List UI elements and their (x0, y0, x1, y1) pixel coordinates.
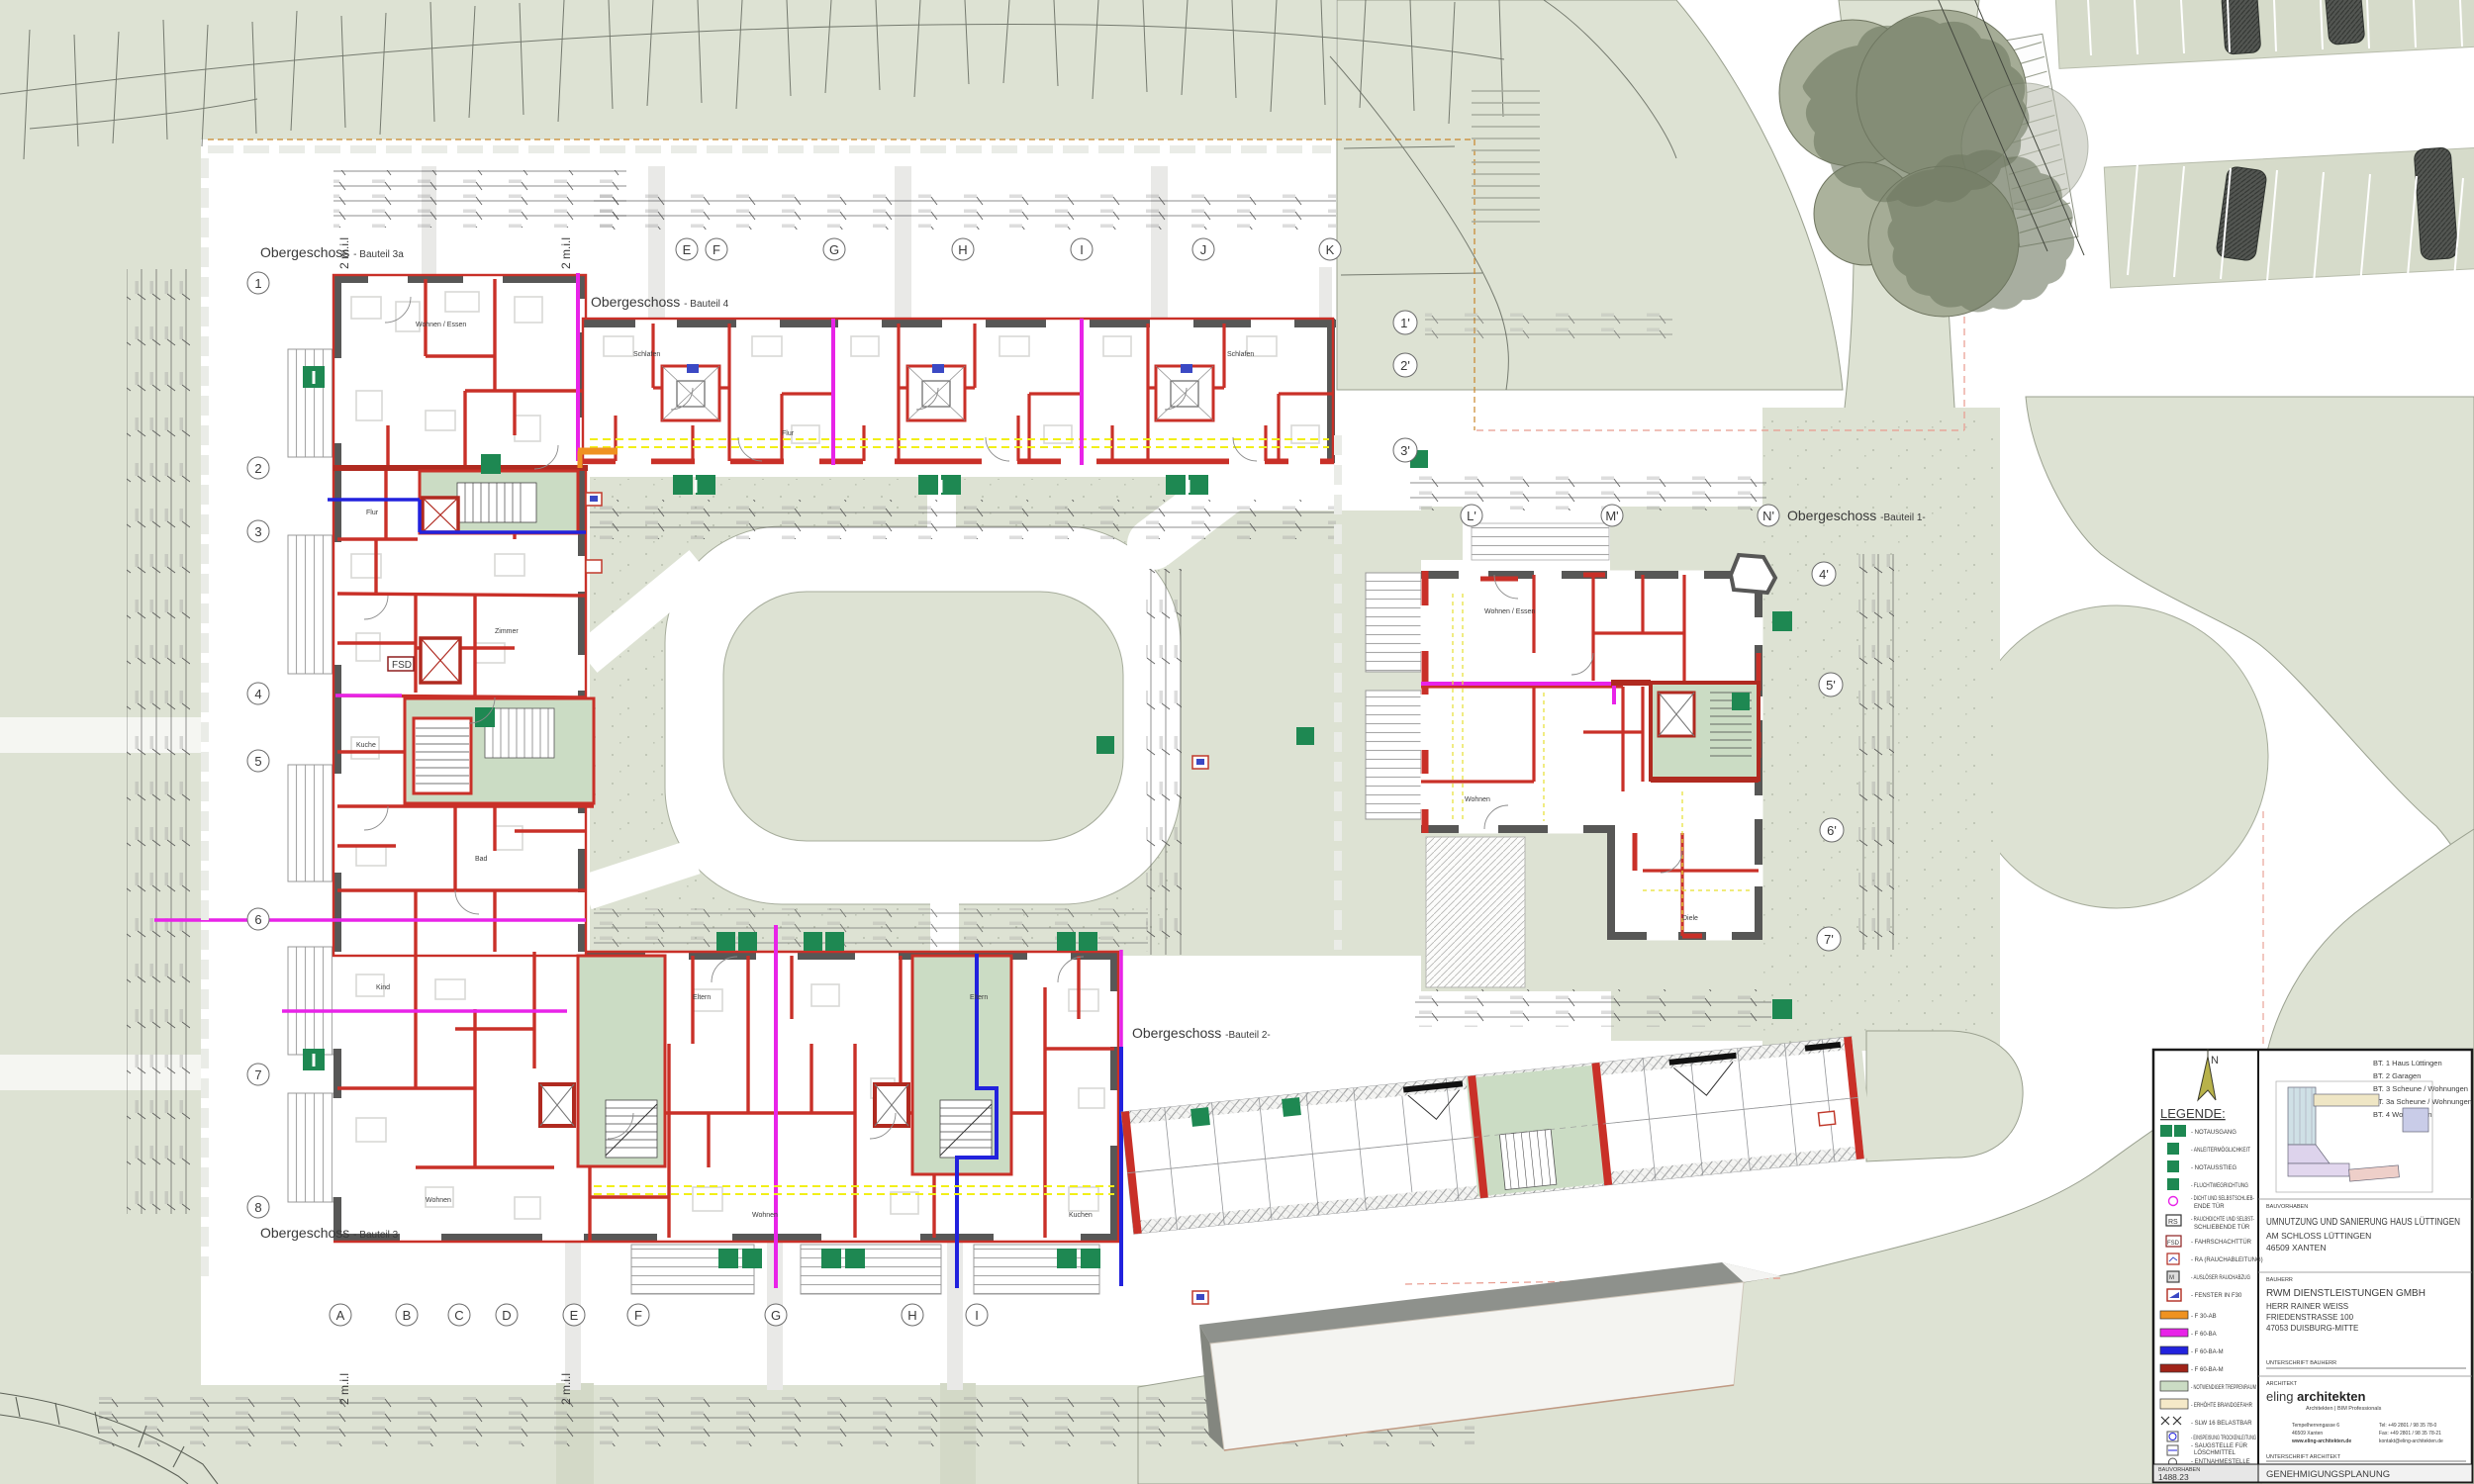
svg-text:Wohnen: Wohnen (1465, 796, 1490, 803)
svg-text:- NOTAUSGANG: - NOTAUSGANG (2191, 1130, 2236, 1136)
svg-text:H: H (958, 242, 967, 257)
svg-text:Bad: Bad (475, 856, 488, 863)
svg-text:Schlafen: Schlafen (1227, 351, 1254, 358)
svg-text:F: F (713, 242, 720, 257)
svg-text:7: 7 (254, 1067, 261, 1082)
svg-text:K: K (1326, 242, 1335, 257)
svg-text:ARCHITEKT: ARCHITEKT (2266, 1381, 2298, 1387)
svg-text:Diele: Diele (1682, 915, 1698, 922)
svg-text:J: J (1200, 242, 1207, 257)
svg-text:Tempelherrengasse 6: Tempelherrengasse 6 (2292, 1423, 2339, 1429)
svg-text:- F 30-AB: - F 30-AB (2191, 1314, 2217, 1320)
svg-text:L': L' (1467, 509, 1476, 523)
svg-text:5': 5' (1826, 678, 1836, 693)
svg-text:8: 8 (254, 1200, 261, 1215)
svg-text:D: D (502, 1308, 511, 1323)
svg-text:AM SCHLOSS LÜTTINGEN: AM SCHLOSS LÜTTINGEN (2266, 1231, 2371, 1241)
svg-text:C: C (454, 1308, 463, 1323)
svg-text:UMNUTZUNG UND SANIERUNG HAUS L: UMNUTZUNG UND SANIERUNG HAUS LÜTTINGEN (2266, 1216, 2460, 1228)
svg-text:- FENSTER IN F30: - FENSTER IN F30 (2191, 1293, 2242, 1299)
svg-text:6: 6 (254, 912, 261, 927)
svg-text:BT. 3a Scheune / Wohnungen: BT. 3a Scheune / Wohnungen (2373, 1097, 2472, 1106)
svg-text:47053 DUISBURG-MITTE: 47053 DUISBURG-MITTE (2266, 1324, 2358, 1333)
svg-text:- F 60-BA-M: - F 60-BA-M (2191, 1367, 2224, 1373)
svg-text:BT. 2 Garagen: BT. 2 Garagen (2373, 1071, 2421, 1080)
svg-text:- F 60-BA-M: - F 60-BA-M (2191, 1349, 2224, 1355)
svg-text:- FAHRSCHACHTTÜR: - FAHRSCHACHTTÜR (2191, 1239, 2252, 1246)
svg-text:- SAUGSTELLE FÜR: - SAUGSTELLE FÜR (2191, 1442, 2248, 1449)
svg-text:- NOTWENDIGER TREPPENRAUM: - NOTWENDIGER TREPPENRAUM (2191, 1385, 2256, 1391)
svg-text:GENEHMIGUNGSPLANUNG: GENEHMIGUNGSPLANUNG (2266, 1469, 2390, 1480)
svg-text:- ANLEITERMÖGLICHKEIT: - ANLEITERMÖGLICHKEIT (2191, 1147, 2250, 1154)
svg-text:1: 1 (254, 276, 261, 291)
svg-text:G: G (829, 242, 839, 257)
svg-text:Architekten | BIM Professional: Architekten | BIM Professionals (2306, 1406, 2382, 1412)
svg-text:- FLUCHTWEGRICHTUNG: - FLUCHTWEGRICHTUNG (2191, 1183, 2248, 1189)
svg-text:Schlafen: Schlafen (633, 351, 660, 358)
svg-text:Kind: Kind (376, 984, 390, 991)
svg-text:F: F (634, 1308, 642, 1323)
svg-text:Wohnen: Wohnen (752, 1212, 778, 1219)
svg-text:Kuche: Kuche (356, 742, 376, 749)
svg-text:Tel: +49 2801 / 98 35 78-0: Tel: +49 2801 / 98 35 78-0 (2379, 1423, 2436, 1429)
svg-text:- NOTAUSSTIEG: - NOTAUSSTIEG (2191, 1165, 2237, 1171)
svg-text:RWM DIENSTLEISTUNGEN GMBH: RWM DIENSTLEISTUNGEN GMBH (2266, 1288, 2426, 1299)
svg-text:FSD: FSD (392, 660, 412, 671)
svg-text:3': 3' (1400, 443, 1410, 458)
svg-text:4: 4 (254, 687, 261, 701)
svg-text:LEGENDE:: LEGENDE: (2160, 1106, 2226, 1121)
svg-text:1': 1' (1400, 316, 1410, 330)
svg-text:Wohnen / Essen: Wohnen / Essen (416, 322, 466, 328)
svg-text:H: H (907, 1308, 916, 1323)
svg-text:- EINSPEISUNG TROCKENLEITUNG: - EINSPEISUNG TROCKENLEITUNG (2191, 1436, 2256, 1441)
svg-text:- F 60-BA: - F 60-BA (2191, 1332, 2217, 1338)
svg-text:N': N' (1762, 509, 1774, 523)
svg-text:- RAUCHDICHTE UND SELBST-: - RAUCHDICHTE UND SELBST- (2191, 1217, 2254, 1223)
svg-text:2: 2 (254, 461, 261, 476)
svg-text:LÖSCHMITTEL: LÖSCHMITTEL (2194, 1449, 2236, 1456)
svg-text:M: M (2169, 1275, 2174, 1281)
svg-text:I: I (975, 1308, 979, 1323)
svg-text:2 m.i.l: 2 m.i.l (337, 237, 351, 269)
svg-text:- SLW 16 BELASTBAR: - SLW 16 BELASTBAR (2191, 1421, 2252, 1427)
svg-text:www.eling-architekten.de: www.eling-architekten.de (2291, 1438, 2351, 1444)
svg-text:B: B (403, 1308, 412, 1323)
svg-text:- ERHÖHTE BRANDGEFAHR: - ERHÖHTE BRANDGEFAHR (2191, 1402, 2253, 1409)
svg-text:- AUSLÖSER RAUCHABZUG: - AUSLÖSER RAUCHABZUG (2191, 1274, 2250, 1281)
svg-text:5: 5 (254, 754, 261, 769)
svg-text:3: 3 (254, 524, 261, 539)
svg-text:N: N (2211, 1055, 2219, 1067)
svg-text:SCHLIEBENDE TÜR: SCHLIEBENDE TÜR (2194, 1224, 2250, 1231)
svg-text:2 m.i.l: 2 m.i.l (559, 237, 573, 269)
svg-text:UNTERSCHRIFT ARCHITEKT: UNTERSCHRIFT ARCHITEKT (2266, 1454, 2341, 1460)
svg-text:2': 2' (1400, 358, 1410, 373)
svg-text:Flur: Flur (366, 510, 379, 516)
svg-text:Wohnen / Essen: Wohnen / Essen (1484, 608, 1535, 615)
svg-text:FRIEDENSTRASSE 100: FRIEDENSTRASSE 100 (2266, 1313, 2354, 1322)
svg-text:Eltern: Eltern (693, 994, 711, 1001)
svg-text:BT. 1 Haus Lüttingen: BT. 1 Haus Lüttingen (2373, 1059, 2442, 1067)
svg-text:7': 7' (1824, 932, 1834, 947)
svg-text:Kuchen: Kuchen (1069, 1212, 1093, 1219)
svg-text:HERR RAINER WEISS: HERR RAINER WEISS (2266, 1302, 2348, 1311)
svg-text:ENDE TÜR: ENDE TÜR (2194, 1203, 2225, 1210)
svg-text:RS: RS (2168, 1219, 2178, 1226)
svg-text:Flur: Flur (782, 430, 795, 437)
svg-text:1488.23: 1488.23 (2158, 1472, 2189, 1482)
svg-text:M': M' (1605, 509, 1618, 523)
svg-text:Zimmer: Zimmer (495, 628, 519, 635)
svg-text:UNTERSCHRIFT BAUHERR: UNTERSCHRIFT BAUHERR (2266, 1360, 2336, 1366)
svg-text:E: E (570, 1308, 579, 1323)
svg-text:46509 Xanten: 46509 Xanten (2292, 1431, 2323, 1437)
svg-text:kontakt@eling-architekten.de: kontakt@eling-architekten.de (2379, 1438, 2443, 1444)
svg-text:2 m.i.l: 2 m.i.l (337, 1373, 351, 1405)
svg-text:BT. 3 Scheune / Wohnungen: BT. 3 Scheune / Wohnungen (2373, 1084, 2468, 1093)
svg-text:Wohnen: Wohnen (426, 1197, 451, 1204)
svg-text:46509 XANTEN: 46509 XANTEN (2266, 1243, 2326, 1252)
svg-text:eling architekten: eling architekten (2266, 1389, 2365, 1404)
svg-text:BAUHERR: BAUHERR (2266, 1277, 2293, 1283)
svg-text:FSD: FSD (2167, 1241, 2180, 1247)
svg-text:I: I (1080, 242, 1084, 257)
svg-text:A: A (336, 1308, 345, 1323)
svg-text:BAUVORHABEN: BAUVORHABEN (2266, 1204, 2308, 1210)
svg-text:G: G (771, 1308, 781, 1323)
svg-text:4': 4' (1819, 567, 1829, 582)
svg-text:E: E (683, 242, 692, 257)
svg-text:6': 6' (1827, 823, 1837, 838)
svg-text:2 m.i.l: 2 m.i.l (559, 1373, 573, 1405)
svg-text:Fax: +49 2801 / 98 35 78-21: Fax: +49 2801 / 98 35 78-21 (2379, 1431, 2441, 1437)
svg-text:- DICHT UND SELBSTSCHLIEB-: - DICHT UND SELBSTSCHLIEB- (2191, 1196, 2254, 1202)
svg-text:Eltern: Eltern (970, 994, 988, 1001)
svg-text:- RA (RAUCHABLEITUNG): - RA (RAUCHABLEITUNG) (2191, 1257, 2263, 1263)
